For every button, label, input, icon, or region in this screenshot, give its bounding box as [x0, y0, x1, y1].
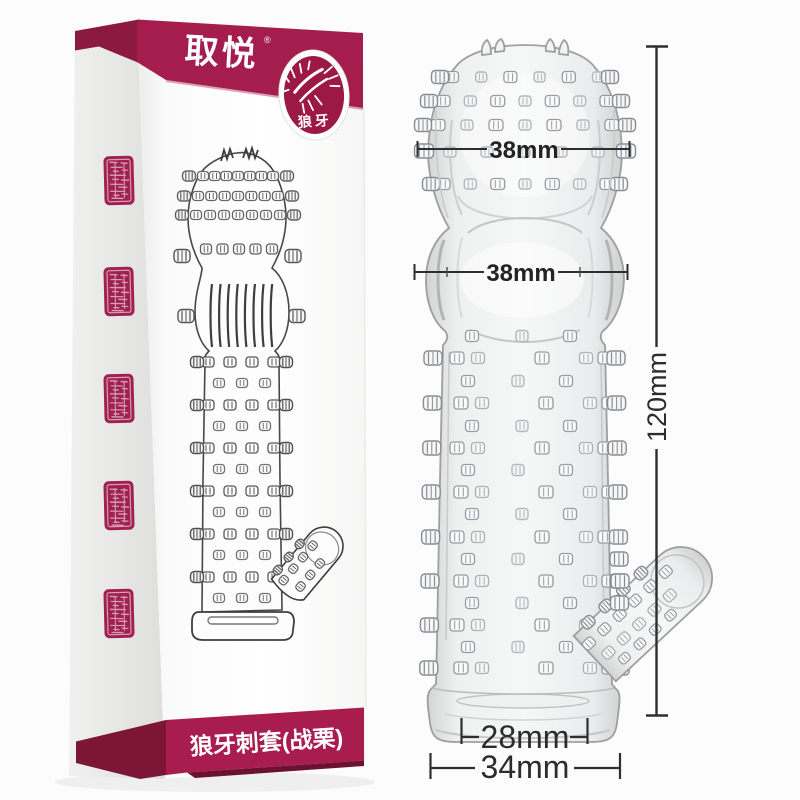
svg-text:120mm: 120mm — [642, 352, 672, 442]
svg-text:34mm: 34mm — [481, 749, 570, 785]
svg-text:®: ® — [264, 35, 271, 45]
svg-text:38mm: 38mm — [486, 260, 555, 287]
svg-text:狼牙: 狼牙 — [297, 112, 332, 130]
svg-text:38mm: 38mm — [489, 137, 558, 164]
svg-text:取悦: 取悦 — [184, 32, 260, 74]
